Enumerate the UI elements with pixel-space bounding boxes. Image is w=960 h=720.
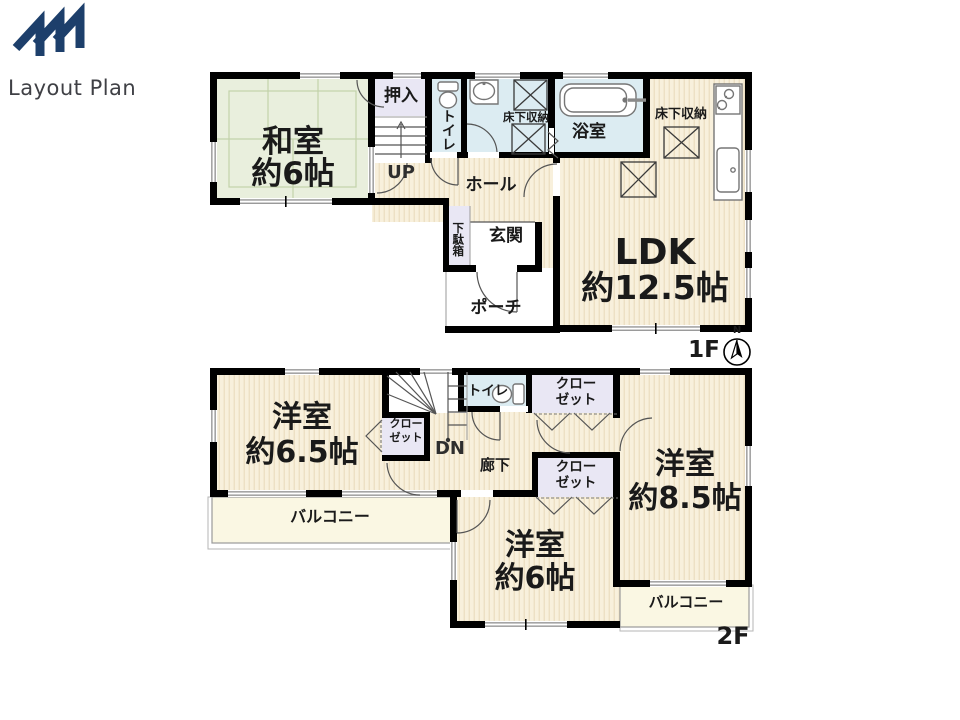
stairs-down-label: DN bbox=[428, 439, 472, 458]
balcony-right-label: バルコニー bbox=[634, 595, 738, 611]
washitsu-size: 約6帖 bbox=[215, 158, 371, 191]
bathtub-icon bbox=[560, 84, 646, 116]
ldk-size: 約12.5帖 bbox=[578, 271, 732, 306]
floor1-label: 1F bbox=[686, 338, 722, 362]
hall-label: ホール bbox=[458, 176, 524, 194]
toilet-2f-label: トイレ bbox=[465, 384, 511, 398]
western65-name: 洋室 bbox=[262, 402, 342, 434]
closet3-line2: ゼット bbox=[385, 432, 427, 444]
logo-title: Layout Plan bbox=[8, 76, 138, 100]
floor-plan-drawing bbox=[0, 0, 960, 720]
washitsu-name: 和室 bbox=[228, 126, 358, 159]
western85-size: 約8.5帖 bbox=[620, 483, 750, 515]
closet2-line2: ゼット bbox=[545, 476, 607, 490]
toilet-1f-label: トイレ bbox=[440, 98, 455, 162]
sink-icon bbox=[470, 80, 498, 104]
western6-name: 洋室 bbox=[495, 530, 575, 562]
layout-plan-page: Layout Plan 和室 約6帖 押入 UP トイレ 床下収納 浴室 床下収… bbox=[0, 0, 960, 720]
underfloor2-label: 床下収納 bbox=[644, 108, 718, 122]
western65-size: 約6.5帖 bbox=[234, 437, 370, 469]
getabako-label: 下駄箱 bbox=[452, 211, 464, 267]
closet2-line1: クロー bbox=[545, 460, 607, 474]
compass-north-label: N bbox=[730, 326, 744, 337]
floor2-label: 2F bbox=[710, 624, 756, 649]
oshiire-label: 押入 bbox=[375, 87, 427, 105]
corridor-label: 廊下 bbox=[470, 458, 520, 474]
genkan-label: 玄関 bbox=[478, 227, 534, 245]
kitchen-counter-icon bbox=[714, 84, 742, 200]
ldk-name: LDK bbox=[595, 234, 715, 272]
western85-name: 洋室 bbox=[645, 449, 725, 481]
western6-size: 約6帖 bbox=[487, 563, 583, 595]
underfloor1-label: 床下収納 bbox=[498, 111, 554, 123]
layout-plan-logo-icon bbox=[16, 14, 80, 56]
closet3-line1: クロー bbox=[385, 418, 427, 430]
compass-icon bbox=[724, 339, 750, 365]
bathroom-label: 浴室 bbox=[562, 123, 616, 141]
porch-label: ポーチ bbox=[458, 299, 534, 317]
balcony-left-label: バルコニー bbox=[270, 509, 390, 526]
closet1-line1: クロー bbox=[545, 377, 607, 391]
closet1-line2: ゼット bbox=[545, 393, 607, 407]
stairs-up-label: UP bbox=[378, 163, 424, 182]
